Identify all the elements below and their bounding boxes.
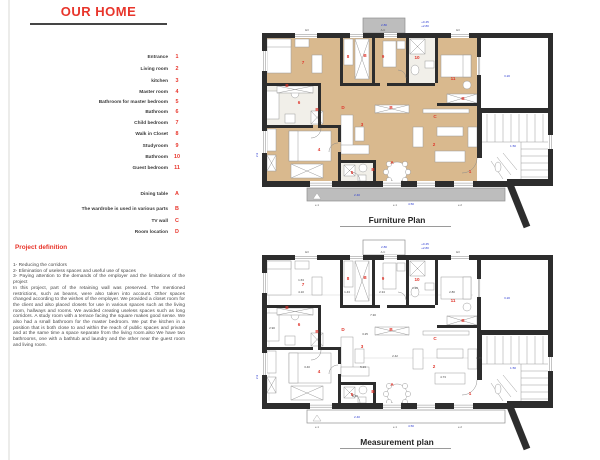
measurement-value: 2.42 xyxy=(392,354,398,358)
diagonal-wall xyxy=(509,182,527,227)
room-label: 5 xyxy=(351,170,354,175)
legend-item-label: Child bedroom xyxy=(58,121,168,127)
wall-tag: E3 xyxy=(456,28,460,32)
legend-item-number: C xyxy=(168,218,186,224)
dimension-label: 2.80 xyxy=(381,23,387,27)
window-opening xyxy=(454,403,473,409)
room-label: 6 xyxy=(298,322,301,327)
dimension-label: 3.20 xyxy=(504,296,510,300)
measurement-value: 7.30 xyxy=(370,313,376,317)
window-opening xyxy=(383,403,401,409)
legend-item-label: Master room xyxy=(58,90,168,96)
project-definition-text: 1- Reducing the corridors2- Elimination … xyxy=(13,263,185,349)
measurement-value: 4.10 xyxy=(298,290,304,294)
room-label: 9 xyxy=(382,276,385,281)
measurement-value: 2.90 xyxy=(269,326,275,330)
legend-item-number: B xyxy=(168,206,186,212)
legend-item-number: 2 xyxy=(168,66,186,72)
room-label: 1 xyxy=(469,169,472,174)
legend-item: Dining tableA xyxy=(58,191,190,198)
legend-item-label: Bathroom xyxy=(58,155,168,161)
dimension-label: +2.80 xyxy=(421,246,429,250)
window-opening xyxy=(350,255,363,260)
window-opening xyxy=(262,51,267,71)
dimension-label: 2.9 xyxy=(255,375,259,380)
room-label: 11 xyxy=(451,76,456,81)
legend-item: Walk in Closet8 xyxy=(58,131,190,138)
legend-item: Bathroom10 xyxy=(58,154,190,161)
balcony xyxy=(307,410,505,423)
window-opening xyxy=(295,255,317,260)
room-label: 10 xyxy=(414,55,420,60)
dimension-label: 1.50 xyxy=(510,366,516,370)
legend-item: kitchen3 xyxy=(58,78,190,85)
room-label: 4 xyxy=(318,147,321,152)
measurement-value: 4.73 xyxy=(440,375,446,379)
room-label: 2 xyxy=(433,364,436,369)
legend-item-number: D xyxy=(168,229,186,235)
diagonal-wall xyxy=(509,404,527,449)
window-opening xyxy=(310,403,332,409)
legend-item-label: Dining table xyxy=(58,192,168,198)
legend-item-label: Walk in Closet xyxy=(58,132,168,138)
dimension-label: 4.50 xyxy=(408,424,414,428)
room-label: 1 xyxy=(469,391,472,396)
window-opening xyxy=(548,357,553,371)
legend-item-label: Bathroom for master bedroom xyxy=(58,100,168,106)
measurement-value: 1.85 xyxy=(476,356,482,360)
legend-item-label: Room location xyxy=(58,230,168,236)
window-opening xyxy=(262,131,267,153)
window-opening xyxy=(350,33,363,38)
legend-item-number: A xyxy=(168,191,186,197)
measurement-value: 2.80 xyxy=(449,290,455,294)
legend-item-label: Living room xyxy=(58,67,168,73)
window-opening xyxy=(262,353,267,375)
wall-tag: e.2 xyxy=(458,425,462,429)
legend-item: Room locationD xyxy=(58,229,190,236)
legend-item-label: TV wall xyxy=(58,219,168,225)
wall-tag: A.C xyxy=(381,28,386,32)
wall-tag: e.1 xyxy=(315,203,319,207)
presentation-page: OUR HOME Entrance1Living room2kitchen3Ma… xyxy=(0,0,600,460)
project-paragraph: 3- Paying attention to the demands of th… xyxy=(13,274,185,285)
measurement-value: 2.34 xyxy=(379,290,385,294)
legend-item-number: 1 xyxy=(168,54,186,60)
legend-item: Child bedroom7 xyxy=(58,120,190,127)
room-label: 3 xyxy=(361,122,364,127)
dimension-label: 3.20 xyxy=(504,74,510,78)
room-label: 4 xyxy=(318,369,321,374)
legend-item-label: Studyroom xyxy=(58,144,168,150)
measurement-value: 3.25 xyxy=(362,332,368,336)
window-opening xyxy=(451,33,469,38)
room-label: 6 xyxy=(298,100,301,105)
window-opening xyxy=(454,181,473,187)
measurement-plan-svg: 78B91011B6BDBCB3245BA12.80+0.45+2.803.20… xyxy=(255,237,555,453)
legend-item-number: 9 xyxy=(168,143,186,149)
legend-item-label: Guest bedroom xyxy=(58,166,168,172)
room-label: 2 xyxy=(433,142,436,147)
room-label: 11 xyxy=(451,298,456,303)
room-label: 7 xyxy=(302,60,305,65)
room-label: C xyxy=(433,336,437,341)
measurement-value: 5.23 xyxy=(360,365,366,369)
legend-item: Entrance1 xyxy=(58,54,190,61)
legend-item-label: Bathroom xyxy=(58,110,168,116)
window-opening xyxy=(384,255,397,260)
legend-item: Guest bedroom11 xyxy=(58,165,190,172)
legend-item-number: 8 xyxy=(168,131,186,137)
room-label: 10 xyxy=(414,277,420,282)
dimension-label: 2.40 xyxy=(354,415,360,419)
dimension-label: 4.50 xyxy=(408,202,414,206)
dimension-label: 2.9 xyxy=(255,153,259,158)
measurement-value: 3.40 xyxy=(304,365,310,369)
wall-tag: E3 xyxy=(305,250,309,254)
measurement-plan-title: Measurement plan xyxy=(360,437,434,447)
wall-tag: e.1 xyxy=(393,203,397,207)
window-opening xyxy=(295,33,317,38)
window-opening xyxy=(310,181,332,187)
wall-tag: E3 xyxy=(456,250,460,254)
room-label: 8 xyxy=(347,276,350,281)
legend-item-number: 6 xyxy=(168,109,186,115)
room-legend: Entrance1Living room2kitchen3Master room… xyxy=(0,0,200,240)
window-opening xyxy=(477,279,481,297)
balcony xyxy=(307,188,505,201)
legend-item-number: 5 xyxy=(168,99,186,105)
measurement-value: 1.63 xyxy=(298,278,304,282)
legend-item-number: 11 xyxy=(168,165,186,171)
room-label: 3 xyxy=(361,344,364,349)
legend-item: Bathroom for master bedroom5 xyxy=(58,99,190,106)
legend-item-number: 10 xyxy=(168,154,186,160)
window-opening xyxy=(384,33,397,38)
measurement-value: 2.10 xyxy=(352,394,358,398)
dimension-label: 1.50 xyxy=(510,144,516,148)
legend-item: Master room4 xyxy=(58,89,190,96)
wall-tag: e.1 xyxy=(315,425,319,429)
legend-item-number: 7 xyxy=(168,120,186,126)
door-swing-arc xyxy=(398,292,406,300)
dimension-label: 2.80 xyxy=(381,245,387,249)
project-paragraph: In this project, part of the retaining w… xyxy=(13,286,185,349)
room-label: 7 xyxy=(302,282,305,287)
window-opening xyxy=(417,181,435,187)
legend-item: Studyroom9 xyxy=(58,143,190,150)
dimension-label: +2.80 xyxy=(421,24,429,28)
room-label: 8 xyxy=(347,54,350,59)
window-opening xyxy=(383,181,401,187)
legend-item-label: Entrance xyxy=(58,55,168,61)
dimension-label: 2.40 xyxy=(354,193,360,197)
window-opening xyxy=(262,273,267,293)
legend-item-number: 4 xyxy=(168,89,186,95)
wall-tag: A.C xyxy=(381,250,386,254)
measurement-value: 1.43 xyxy=(344,290,350,294)
window-opening xyxy=(477,57,481,75)
legend-item: The wardrobe is used in various partsB xyxy=(58,206,190,213)
project-definition-heading: Project definition xyxy=(15,244,67,251)
furniture-plan-title: Furniture Plan xyxy=(369,215,426,225)
window-opening xyxy=(451,255,469,260)
window-opening xyxy=(417,403,435,409)
legend-item-label: The wardrobe is used in various parts xyxy=(58,207,168,213)
room-label: D xyxy=(341,327,345,332)
legend-item: Bathroom6 xyxy=(58,109,190,116)
wall-tag: e.1 xyxy=(393,425,397,429)
wall-tag: E3 xyxy=(305,28,309,32)
legend-item: TV wallC xyxy=(58,218,190,225)
legend-item-label: kitchen xyxy=(58,79,168,85)
measurement-value: 1.20 xyxy=(412,286,418,290)
legend-item: Living room2 xyxy=(58,66,190,73)
legend-item-number: 3 xyxy=(168,78,186,84)
room-label: 9 xyxy=(382,54,385,59)
window-opening xyxy=(548,135,553,149)
furniture-plan-svg: 78B91011B6BDBCB3245BA12.80+0.45+2.803.20… xyxy=(255,15,555,231)
wall-tag: e.2 xyxy=(458,203,462,207)
